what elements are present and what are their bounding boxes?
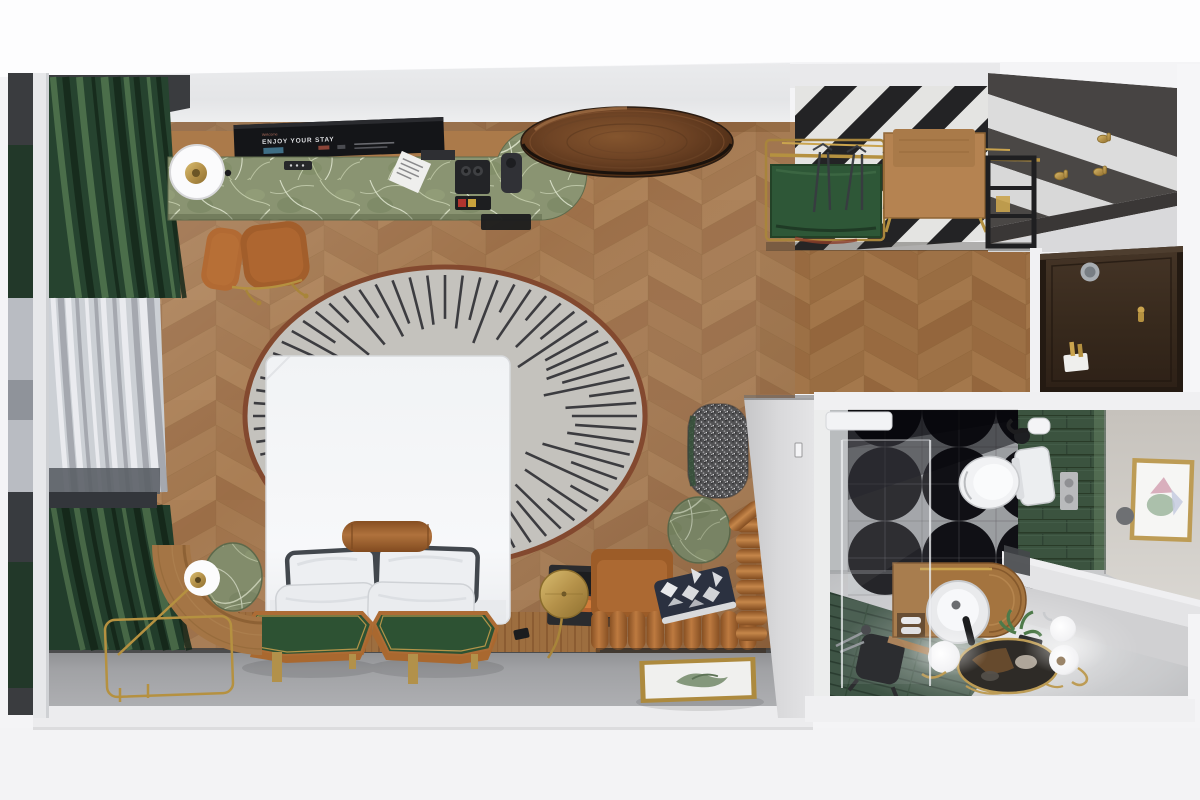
svg-text:Welcome: Welcome — [262, 132, 278, 137]
